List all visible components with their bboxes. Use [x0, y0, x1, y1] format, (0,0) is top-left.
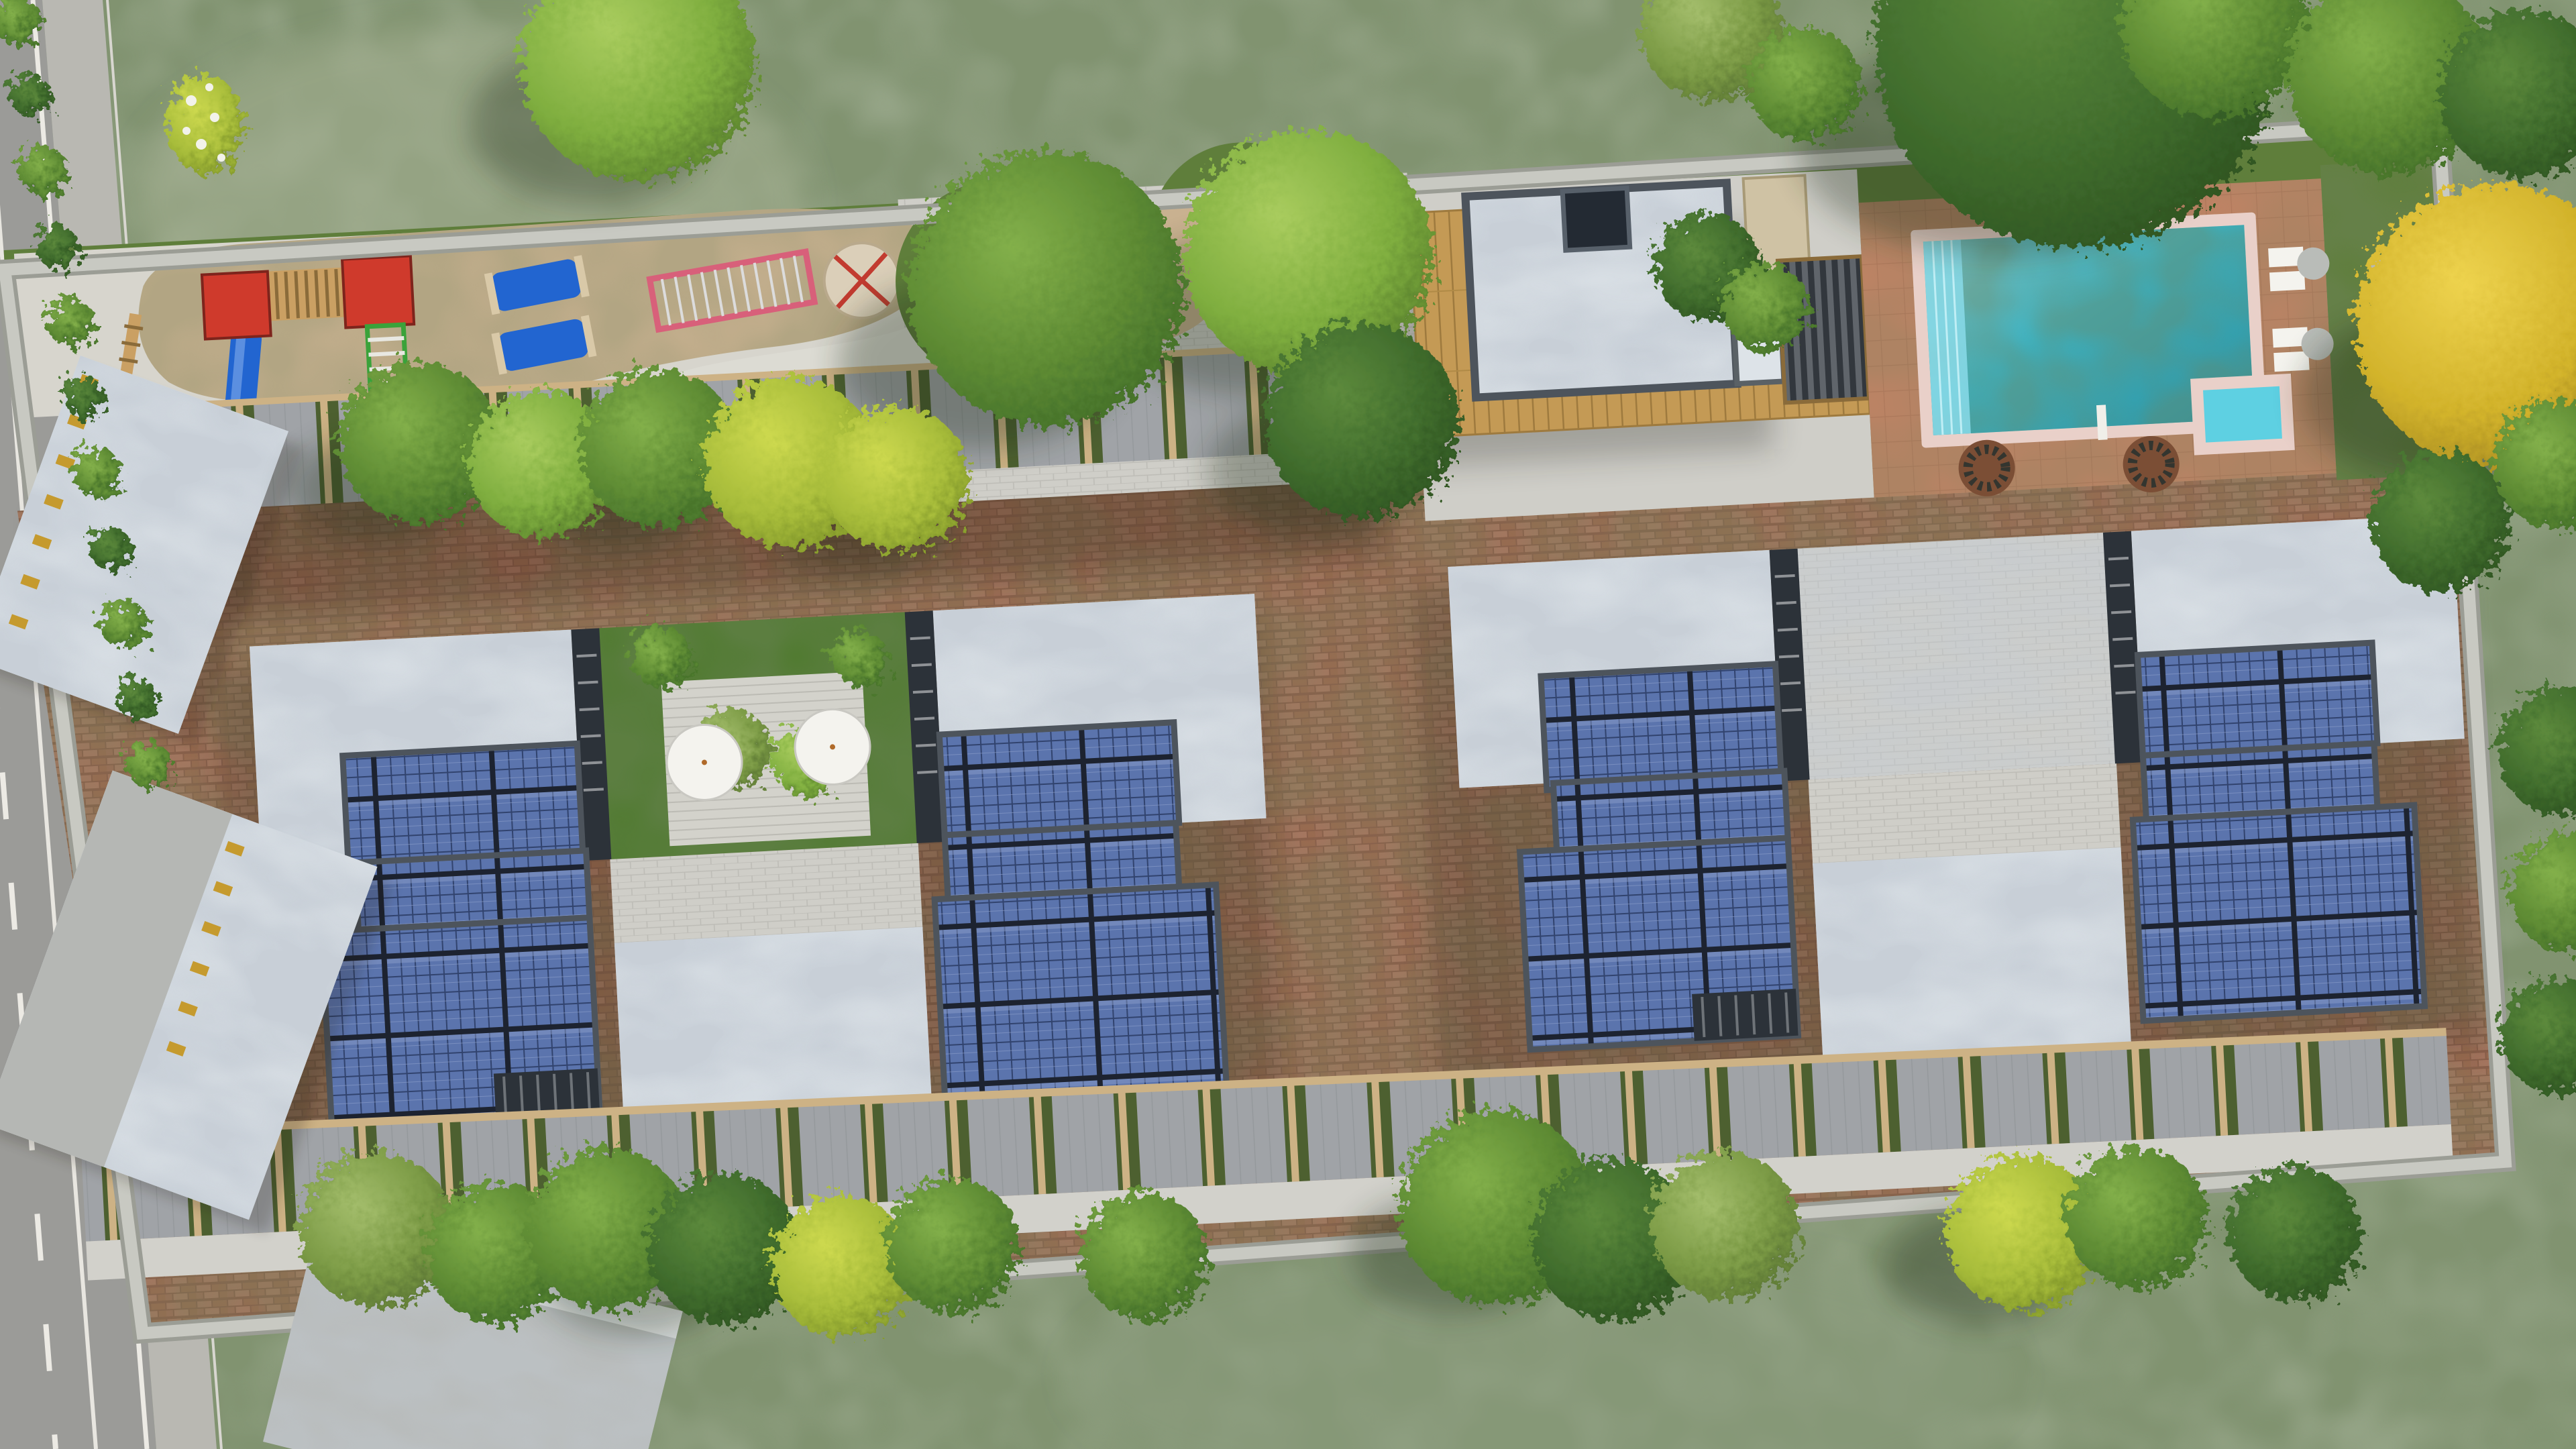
solar-roof-br [934, 885, 1226, 1101]
play-tower-red-2 [342, 256, 414, 327]
courtyard-paving-shading [1796, 533, 2116, 780]
clubhouse-skylight-notch [1562, 188, 1629, 250]
tree [1650, 1151, 1798, 1299]
tree [1748, 27, 1862, 141]
louver-vent [1692, 989, 1798, 1041]
tree [1080, 1192, 1207, 1320]
tree [1722, 264, 1809, 351]
residential-cluster-right [1411, 514, 2483, 1102]
solar-roof-b [939, 722, 1179, 835]
tree [824, 407, 969, 551]
aerial-render-canvas [0, 0, 2576, 1449]
solar-roof-b [2138, 643, 2377, 755]
tree [299, 1152, 453, 1306]
sun-lounger [2269, 271, 2305, 292]
tree [2227, 1166, 2361, 1300]
tree [2370, 451, 2511, 592]
play-tower-red-1 [202, 272, 271, 339]
tree [1265, 324, 1459, 519]
flowering-bush [166, 74, 244, 174]
tree [885, 1178, 1020, 1312]
site-plan-svg [0, 0, 2576, 1449]
island-tree [909, 151, 1184, 426]
marble-veins [1813, 847, 2131, 1058]
solar-roof-br [2133, 805, 2424, 1021]
pool-diving-board [2096, 405, 2108, 440]
sun-lounger [2273, 351, 2309, 372]
kids-pool-water [2203, 386, 2282, 443]
tree [2066, 1147, 2207, 1288]
